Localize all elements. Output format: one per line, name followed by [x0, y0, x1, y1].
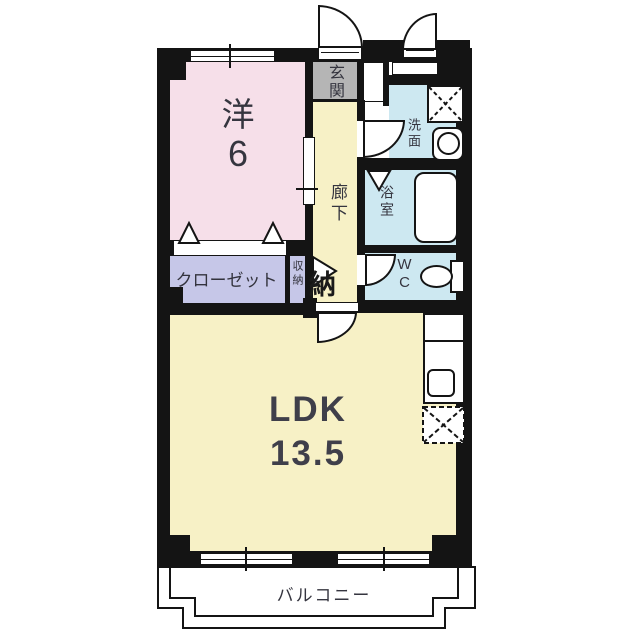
ldk-size: 13.5	[243, 436, 373, 471]
closet-label: クローゼット	[170, 272, 283, 289]
washing-machine-pan-icon	[427, 85, 464, 123]
window-bottom-left-tick	[245, 547, 247, 571]
entrance-label: 玄関	[326, 64, 342, 100]
storage-big-char: 納	[309, 272, 336, 299]
wall-below-wc	[357, 300, 470, 313]
ldk-door-threshold	[315, 302, 359, 312]
wall-bathroom-wc	[363, 245, 456, 253]
bathtub-icon	[414, 172, 458, 243]
bathroom-label: 浴室	[380, 185, 394, 219]
washroom-label: 洗面	[407, 118, 420, 150]
ldk-name: LDK	[243, 392, 373, 427]
washbasin-bowl-icon	[437, 132, 460, 155]
floor-plan: 洋 6 LDK 13.5 クローゼット 収納 納 廊下 玄関 洗面 浴室 WC …	[0, 0, 640, 640]
wc-label: WC	[397, 256, 412, 292]
refrigerator-space-icon	[422, 406, 465, 444]
pillar-top-left	[157, 48, 186, 80]
toilet-bowl-icon	[420, 265, 453, 288]
ldk-label: LDK 13.5	[243, 392, 373, 471]
kitchen-sink-icon	[427, 369, 455, 397]
entrance-door-swing-icon	[318, 5, 363, 48]
sliding-door-western-icon	[303, 137, 315, 205]
window-top-icon	[190, 50, 275, 62]
window-top-tick	[229, 44, 231, 68]
western-room-label: 洋 6	[193, 98, 283, 172]
western-room-size: 6	[193, 136, 283, 172]
balcony-label: バルコニー	[250, 587, 398, 604]
pillar-bottom-right	[432, 535, 470, 567]
window-bottom-right-tick	[383, 547, 385, 571]
sliding-door-western-tick	[296, 188, 318, 190]
storage-label: 収納	[291, 260, 302, 288]
pillar-top-right	[437, 40, 470, 85]
hallway-label: 廊下	[329, 183, 346, 225]
pillar-bottom-left	[157, 535, 190, 567]
pillar-closet-left	[157, 287, 183, 313]
wall-entrance-shoe	[357, 62, 363, 102]
kitchen-counter-divider	[424, 340, 464, 342]
western-room-name: 洋	[193, 98, 283, 131]
closet-door-fold-icon	[173, 220, 291, 244]
service-door-swing-icon	[402, 13, 437, 50]
